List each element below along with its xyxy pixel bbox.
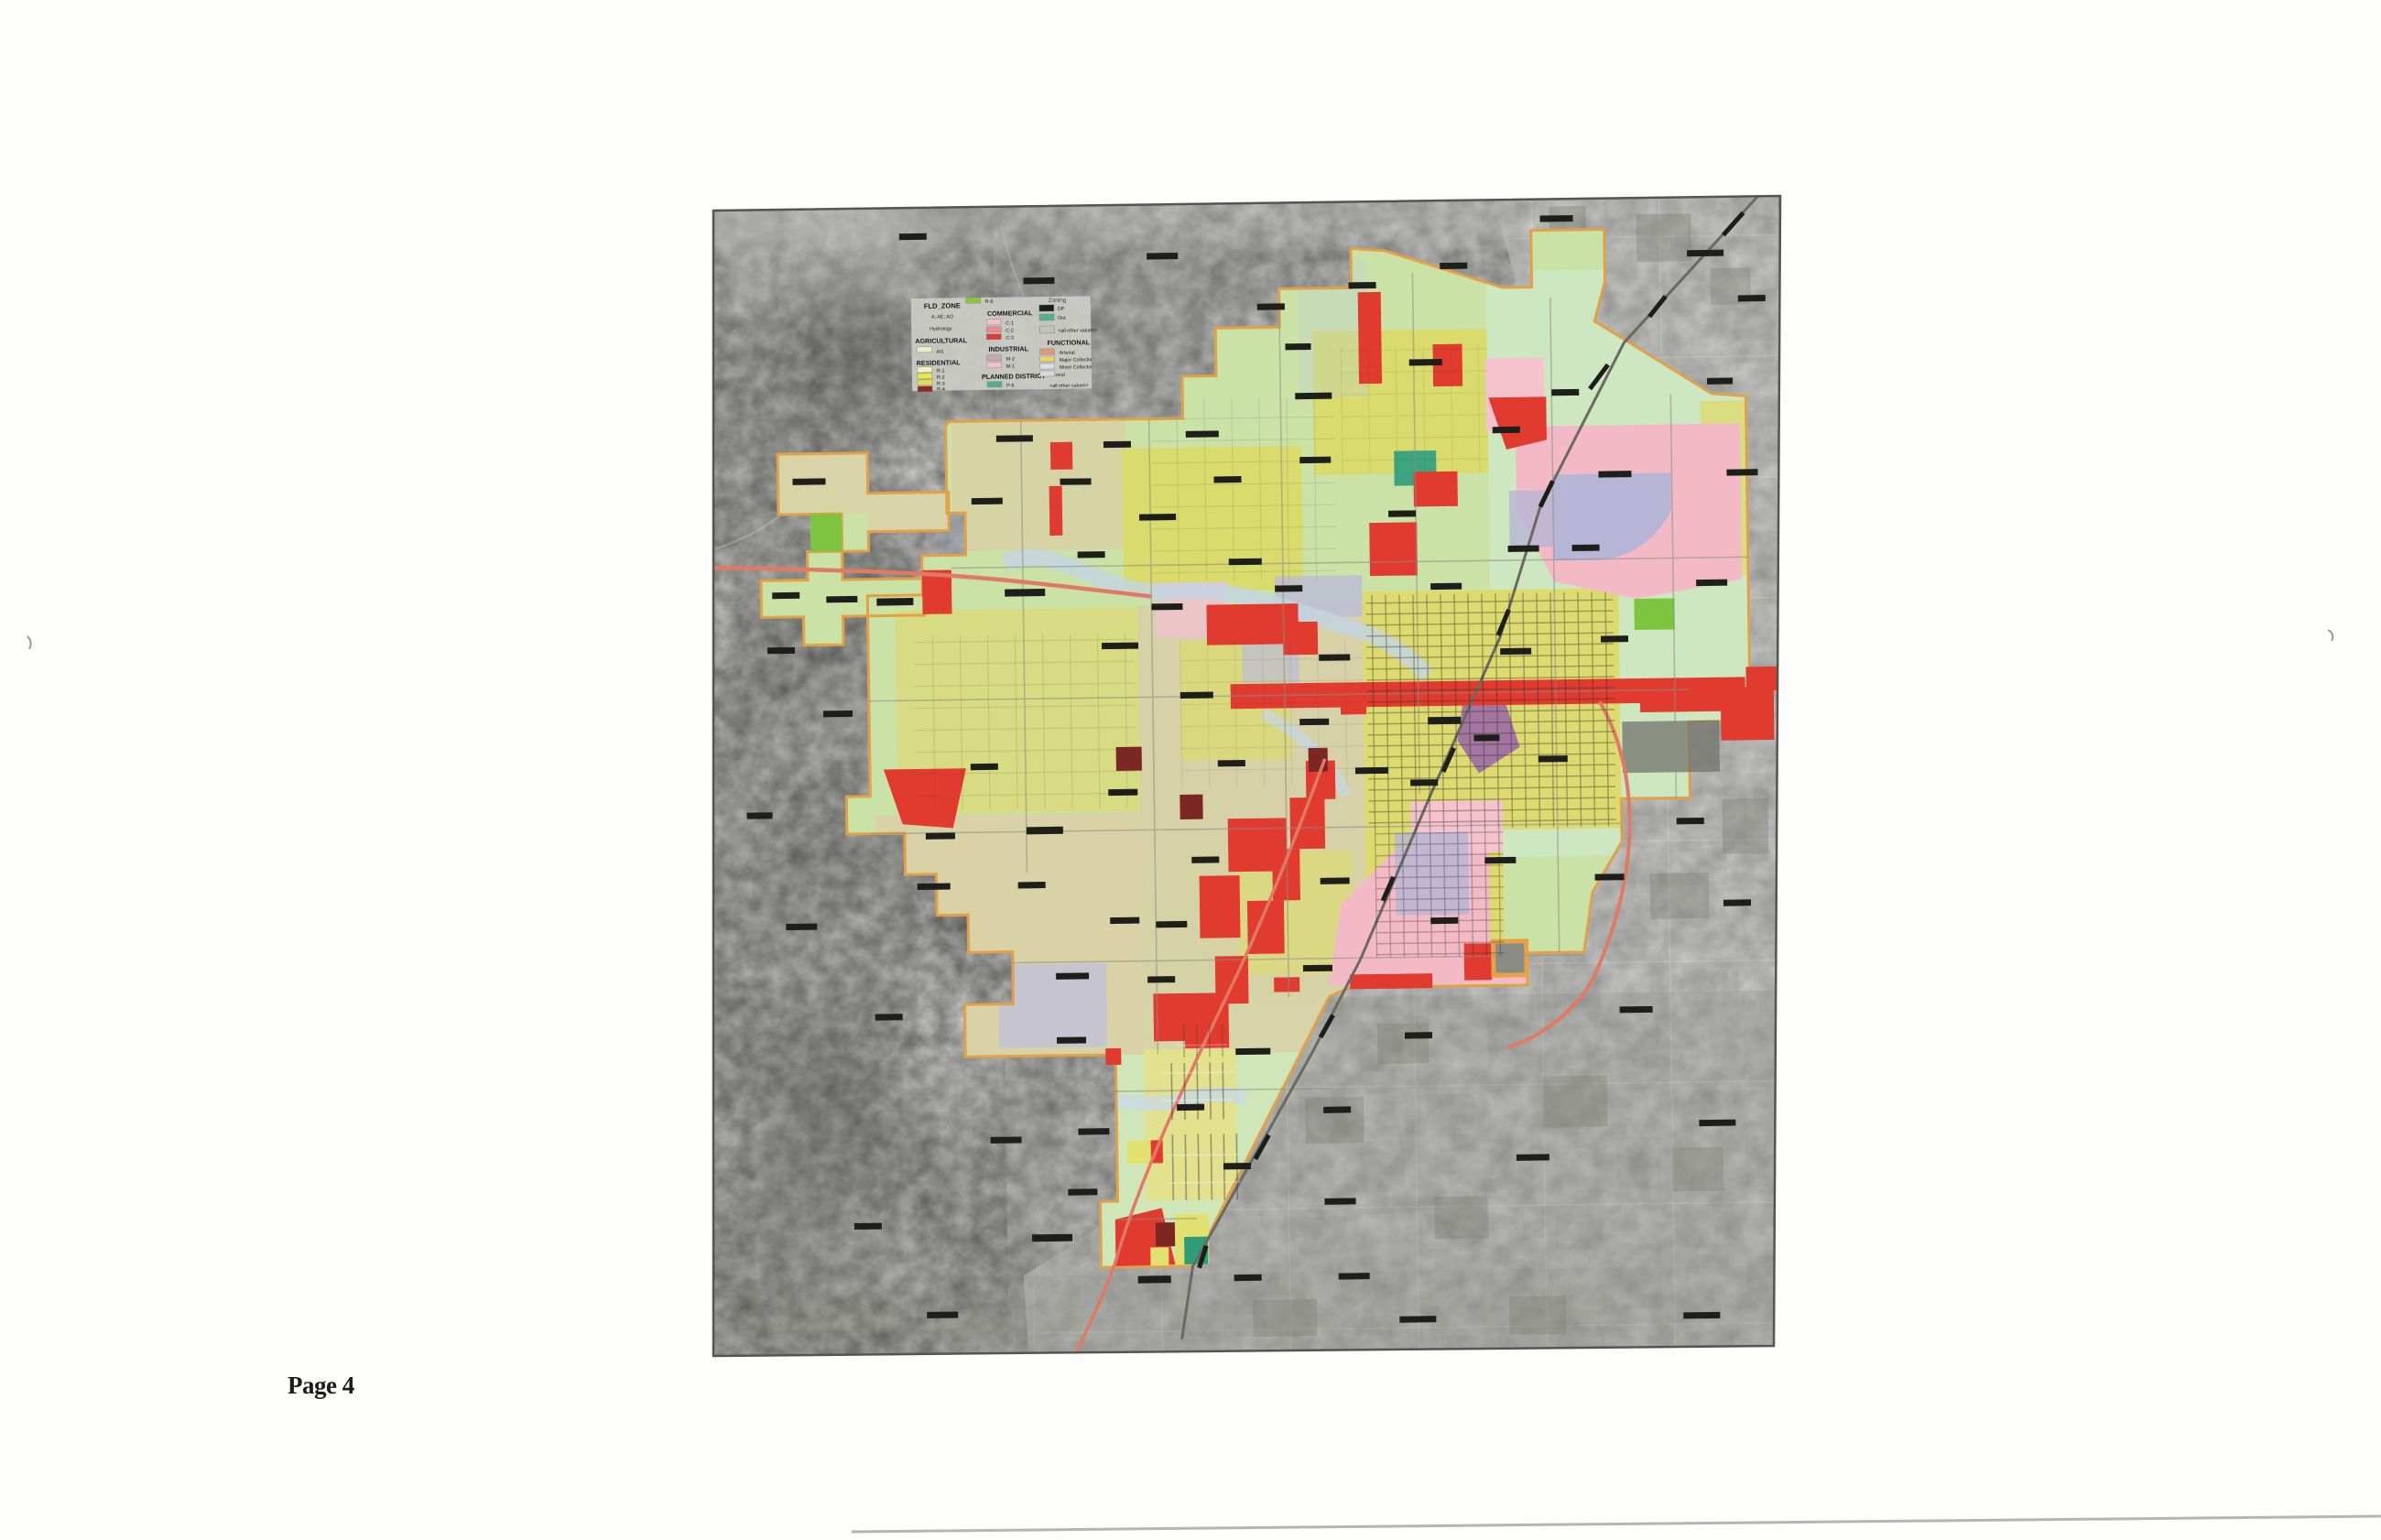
svg-text:INDUSTRIAL: INDUSTRIAL bbox=[988, 344, 1028, 353]
svg-text:C-2: C-2 bbox=[1006, 328, 1014, 333]
svg-text:FUNCTIONAL: FUNCTIONAL bbox=[1047, 338, 1090, 347]
svg-text:M-1: M-1 bbox=[1006, 363, 1015, 369]
svg-text:P-6: P-6 bbox=[1006, 383, 1014, 388]
svg-text:R-4: R-4 bbox=[937, 387, 945, 393]
svg-text:PLANNED DISTRICT: PLANNED DISTRICT bbox=[982, 372, 1047, 381]
svg-text:<all other values>: <all other values> bbox=[1049, 383, 1089, 389]
svg-text:M-2: M-2 bbox=[1006, 356, 1015, 362]
svg-text:Page 4: Page 4 bbox=[288, 1372, 354, 1399]
svg-text:Arterial: Arterial bbox=[1060, 351, 1075, 356]
svg-text:C-3: C-3 bbox=[1006, 335, 1014, 341]
svg-text:R-2: R-2 bbox=[937, 375, 945, 381]
svg-text:<all other values>: <all other values> bbox=[1058, 328, 1097, 334]
svg-text:COMMERCIAL: COMMERCIAL bbox=[987, 309, 1033, 318]
svg-text:RESIDENTIAL: RESIDENTIAL bbox=[917, 358, 962, 367]
svg-text:AGRICULTURAL: AGRICULTURAL bbox=[915, 336, 967, 345]
svg-text:R-1: R-1 bbox=[937, 369, 945, 374]
svg-text:A; AE; AO: A; AE; AO bbox=[931, 314, 953, 320]
svg-text:FLD_ZONE: FLD_ZONE bbox=[924, 301, 961, 310]
svg-text:Hydrology: Hydrology bbox=[930, 326, 952, 331]
svg-text:Out: Out bbox=[1058, 316, 1066, 321]
svg-text:DP: DP bbox=[1058, 307, 1065, 312]
svg-text:C-1: C-1 bbox=[1006, 320, 1014, 326]
svg-text:R-6: R-6 bbox=[985, 299, 994, 305]
svg-text:AG: AG bbox=[936, 350, 943, 355]
svg-text:Zoning: Zoning bbox=[1049, 298, 1067, 304]
svg-text:Major Collector: Major Collector bbox=[1060, 357, 1093, 363]
svg-text:Minor Collector: Minor Collector bbox=[1060, 364, 1093, 371]
